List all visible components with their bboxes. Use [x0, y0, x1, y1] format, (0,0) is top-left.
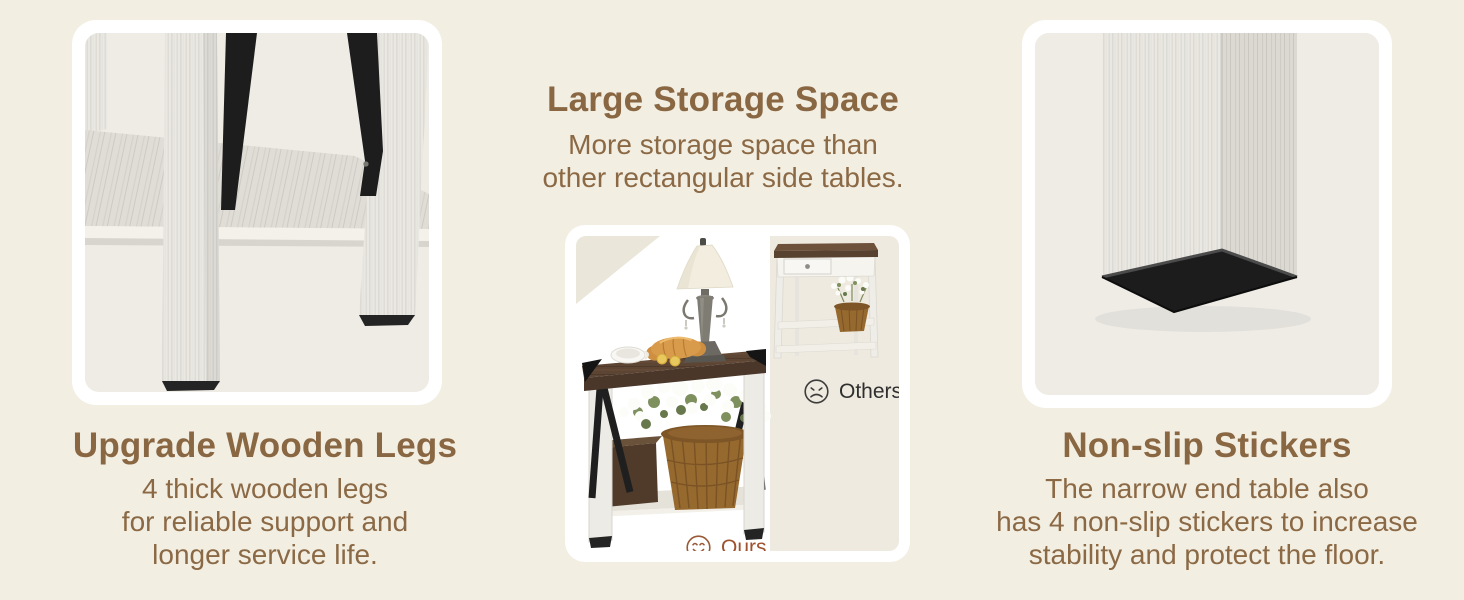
non-slip-sticker-photo-frame — [1035, 33, 1379, 395]
wooden-legs-photo-frame — [85, 33, 429, 392]
right-body-line-1: The narrow end table also — [982, 472, 1432, 505]
wooden-legs-photo-card — [72, 20, 442, 405]
left-body-line-2: for reliable support and — [40, 505, 490, 538]
comparison-photo-frame: Others Ours — [576, 236, 899, 551]
others-label: Others — [839, 380, 899, 404]
left-body-line-1: 4 thick wooden legs — [40, 472, 490, 505]
right-body-line-2: has 4 non-slip stickers to increase — [982, 505, 1432, 538]
left-section-heading: Upgrade Wooden Legs — [40, 426, 490, 466]
right-body-line-3: stability and protect the floor. — [982, 538, 1432, 571]
ours-label-row: Ours — [685, 534, 767, 551]
sad-face-icon — [803, 378, 830, 405]
middle-section-body: More storage space than other rectangula… — [498, 128, 948, 194]
product-feature-banner: Others Ours Upgrade Wooden Legs 4 thick … — [0, 0, 1464, 600]
comparison-photo-card: Others Ours — [565, 225, 910, 562]
wooden-legs-photo — [85, 33, 429, 392]
others-label-row: Others — [803, 378, 899, 405]
left-body-line-3: longer service life. — [40, 538, 490, 571]
middle-section-heading: Large Storage Space — [498, 80, 948, 120]
non-slip-sticker-photo-card — [1022, 20, 1392, 408]
ours-label: Ours — [721, 536, 767, 552]
right-section-body: The narrow end table also has 4 non-slip… — [982, 472, 1432, 571]
right-section-heading: Non-slip Stickers — [982, 426, 1432, 466]
non-slip-sticker-photo — [1035, 33, 1379, 395]
smiley-face-icon — [685, 534, 712, 551]
middle-body-line-2: other rectangular side tables. — [498, 161, 948, 194]
left-section-body: 4 thick wooden legs for reliable support… — [40, 472, 490, 571]
middle-body-line-1: More storage space than — [498, 128, 948, 161]
